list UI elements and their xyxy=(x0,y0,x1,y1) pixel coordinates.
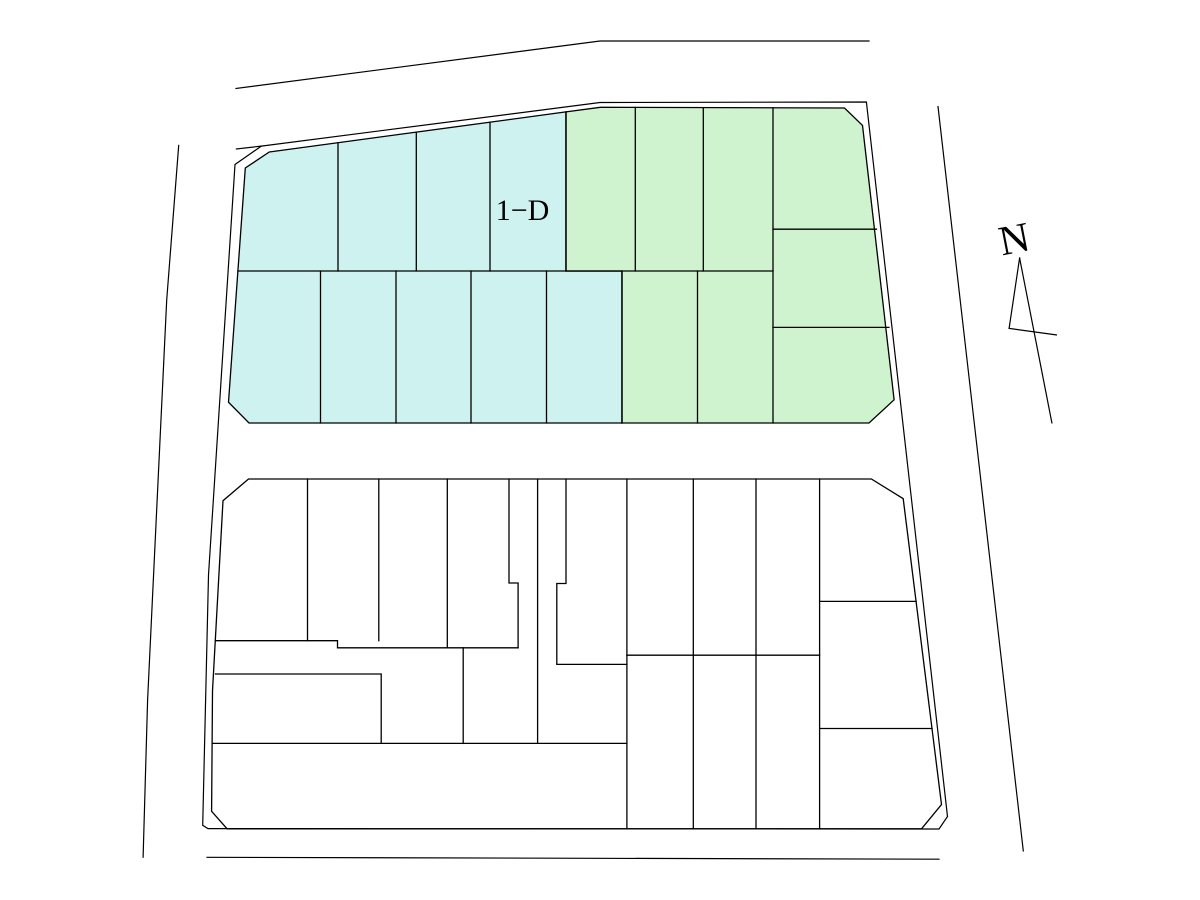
svg-text:N: N xyxy=(995,214,1034,265)
svg-text:1−D: 1−D xyxy=(496,194,550,227)
